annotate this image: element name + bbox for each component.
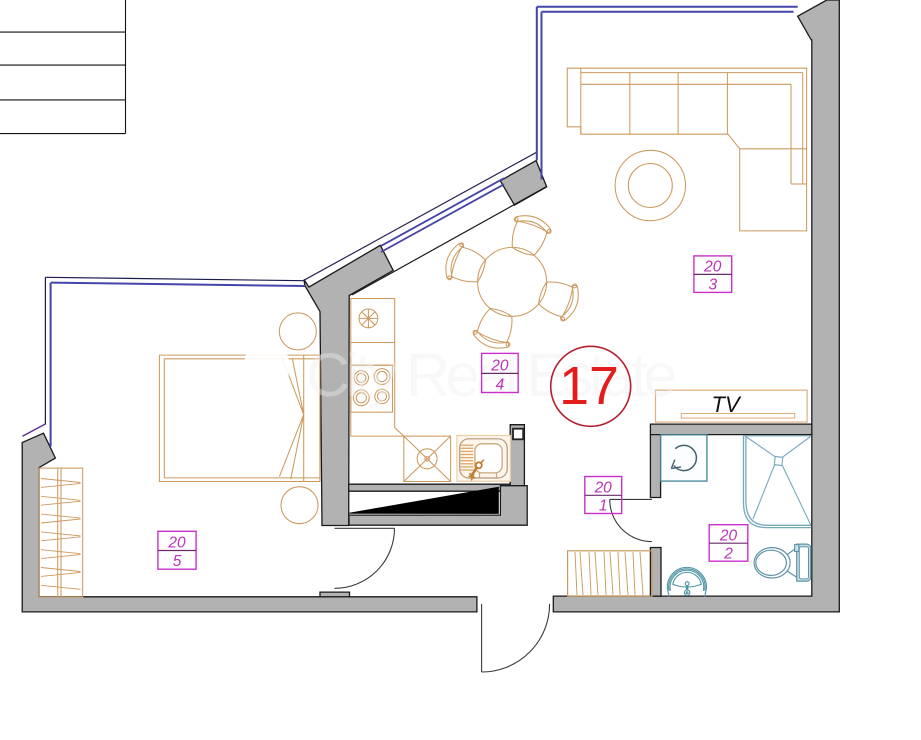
svg-text:3: 3	[708, 277, 717, 294]
svg-text:20: 20	[719, 527, 738, 544]
svg-text:20: 20	[594, 479, 613, 496]
svg-text:4: 4	[496, 377, 505, 394]
svg-text:5: 5	[173, 553, 182, 570]
svg-text:1: 1	[599, 498, 608, 515]
svg-text:20: 20	[490, 358, 509, 375]
svg-text:TV: TV	[712, 392, 742, 417]
svg-text:20: 20	[703, 259, 722, 276]
svg-text:City Real Estate: City Real Estate	[306, 341, 675, 409]
svg-text:2: 2	[723, 545, 733, 562]
svg-text:20: 20	[167, 535, 186, 552]
svg-text:17: 17	[559, 356, 619, 416]
